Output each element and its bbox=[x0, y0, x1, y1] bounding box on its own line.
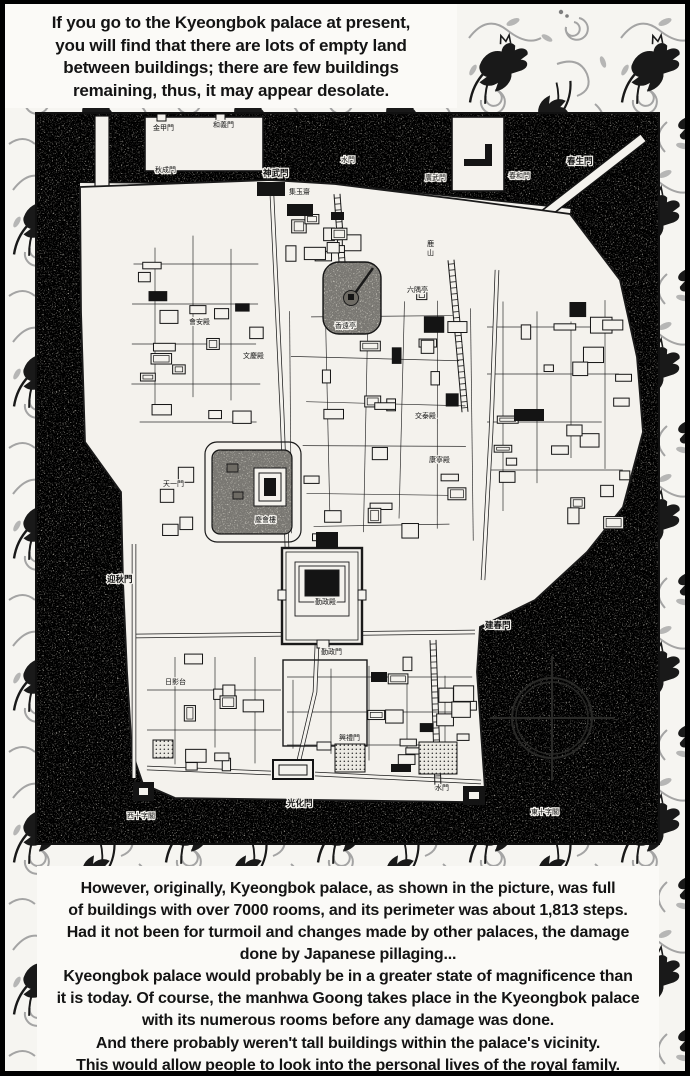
map-label: 集玉齋 bbox=[289, 187, 310, 196]
building bbox=[402, 524, 419, 539]
stream-hatch bbox=[460, 384, 466, 385]
building bbox=[360, 341, 380, 351]
building bbox=[544, 365, 553, 372]
building bbox=[400, 739, 416, 746]
stream-hatch bbox=[456, 341, 462, 342]
building bbox=[243, 700, 263, 712]
building bbox=[286, 246, 296, 261]
gwanghwamun-gate bbox=[273, 760, 313, 779]
building bbox=[448, 322, 467, 333]
map-label: 慶會樓 bbox=[255, 515, 276, 524]
building bbox=[571, 498, 585, 508]
map-label: 勤政門 bbox=[321, 647, 342, 656]
building bbox=[190, 306, 206, 314]
map-label: 日影台 bbox=[165, 677, 186, 686]
building bbox=[398, 755, 415, 765]
building bbox=[616, 374, 632, 381]
building bbox=[160, 310, 178, 323]
stream-hatch bbox=[452, 300, 458, 301]
map-label: 水門 bbox=[435, 783, 449, 792]
map-label: 秋成門 bbox=[155, 165, 176, 174]
building bbox=[421, 340, 434, 353]
building bbox=[580, 434, 599, 447]
dark-hall bbox=[316, 532, 338, 548]
palace-map: 金甲門和義門秋成門神武門水門集玉齋廣武門春和門春生門鹿山會安殿文慶殿六隅亭香遠亭… bbox=[35, 112, 660, 845]
stream-hatch bbox=[461, 402, 467, 403]
map-label: 金甲門 bbox=[153, 123, 174, 132]
map-label: 迎秋門 bbox=[107, 574, 133, 585]
map-label: 東十字閣 bbox=[531, 807, 559, 816]
stream-hatch bbox=[458, 372, 464, 373]
stream-hatch bbox=[459, 378, 465, 379]
building bbox=[209, 411, 222, 419]
building bbox=[151, 354, 172, 365]
bottom-caption: However, originally, Kyeongbok palace, a… bbox=[37, 866, 659, 1071]
building bbox=[614, 398, 630, 406]
stream-hatch bbox=[460, 390, 466, 391]
building bbox=[437, 714, 454, 726]
building bbox=[392, 348, 401, 364]
building bbox=[173, 365, 186, 374]
stream-hatch bbox=[462, 407, 468, 408]
hatched-store bbox=[419, 742, 457, 774]
dark-hall bbox=[331, 212, 344, 220]
building bbox=[215, 753, 229, 761]
stream-hatch bbox=[453, 311, 459, 312]
building bbox=[506, 458, 516, 465]
gyeonghoeru-pond bbox=[205, 442, 301, 542]
building bbox=[304, 247, 325, 259]
building bbox=[372, 447, 387, 459]
map-label: 神武門 bbox=[263, 168, 289, 179]
building bbox=[250, 327, 263, 338]
building bbox=[620, 471, 630, 480]
building bbox=[322, 370, 330, 383]
building bbox=[138, 272, 150, 281]
building bbox=[233, 411, 251, 423]
building bbox=[327, 243, 339, 253]
building bbox=[603, 320, 623, 330]
map-label: 交泰殿 bbox=[415, 411, 436, 420]
building bbox=[521, 325, 530, 339]
stream-hatch bbox=[451, 288, 457, 289]
map-label: 康寧殿 bbox=[429, 455, 450, 464]
building bbox=[325, 511, 341, 523]
building bbox=[215, 309, 229, 319]
west-sipjagak bbox=[133, 782, 154, 801]
map-label: 會安殿 bbox=[189, 317, 210, 326]
building bbox=[403, 657, 412, 670]
building bbox=[304, 476, 319, 483]
top-caption: If you go to the Kyeongbok palace at pre… bbox=[5, 4, 457, 108]
hatched-store bbox=[153, 740, 173, 758]
building bbox=[583, 347, 603, 362]
building bbox=[441, 474, 458, 481]
building bbox=[386, 710, 404, 723]
stream-hatch bbox=[455, 335, 461, 336]
building bbox=[160, 489, 173, 502]
northwest-enclosure bbox=[145, 114, 263, 171]
building bbox=[143, 262, 161, 269]
map-label: 香遠亭 bbox=[335, 321, 356, 330]
building bbox=[567, 425, 582, 436]
building bbox=[375, 403, 396, 410]
building bbox=[388, 674, 408, 684]
map-label: 興禮門 bbox=[339, 733, 360, 742]
sinmumun-gate bbox=[257, 182, 285, 196]
page: If you go to the Kyeongbok palace at pre… bbox=[5, 4, 685, 1071]
building bbox=[163, 524, 178, 535]
building bbox=[570, 303, 586, 317]
map-label: 文慶殿 bbox=[243, 351, 264, 360]
building bbox=[424, 317, 443, 333]
map-label: 西十字閣 bbox=[127, 811, 155, 820]
stream-hatch bbox=[452, 306, 458, 307]
stream-hatch bbox=[448, 264, 454, 265]
dark-hall bbox=[287, 204, 313, 216]
stream-hatch bbox=[457, 360, 463, 361]
building bbox=[568, 508, 579, 524]
dark-hall bbox=[391, 764, 411, 772]
building bbox=[439, 688, 454, 702]
stream-hatch bbox=[456, 348, 462, 349]
building bbox=[446, 394, 458, 406]
building bbox=[457, 734, 469, 740]
stream-hatch bbox=[450, 276, 456, 277]
building bbox=[431, 372, 439, 385]
building bbox=[207, 338, 220, 349]
building bbox=[149, 292, 167, 301]
stream-hatch bbox=[461, 396, 467, 397]
stream-hatch bbox=[454, 317, 460, 318]
stream-hatch bbox=[451, 294, 457, 295]
page-border: If you go to the Kyeongbok palace at pre… bbox=[0, 0, 690, 1076]
east-sipjagak bbox=[463, 786, 485, 805]
map-label: 廣武門 bbox=[425, 173, 446, 182]
building bbox=[185, 654, 203, 664]
building bbox=[186, 763, 197, 771]
building bbox=[152, 405, 171, 415]
dark-hall bbox=[371, 672, 387, 682]
building bbox=[452, 702, 471, 717]
map-label: 建春門 bbox=[484, 620, 511, 631]
map-label: 春和門 bbox=[509, 171, 530, 180]
building bbox=[153, 343, 175, 351]
building bbox=[573, 362, 588, 376]
map-label: 六隅亭 bbox=[407, 285, 428, 294]
dark-hall bbox=[514, 409, 544, 421]
map-label: 春生門 bbox=[566, 156, 593, 167]
building bbox=[601, 485, 614, 496]
northeast-enclosure bbox=[452, 117, 504, 191]
map-label: 勤政殿 bbox=[315, 597, 336, 606]
building bbox=[236, 304, 250, 311]
map-label: 光化門 bbox=[286, 798, 313, 809]
building bbox=[420, 724, 433, 732]
building bbox=[552, 446, 569, 454]
building bbox=[499, 472, 515, 483]
building bbox=[554, 324, 576, 330]
map-label: 水門 bbox=[341, 155, 355, 164]
building bbox=[454, 686, 474, 702]
map-label: 天一門 bbox=[163, 480, 184, 488]
hatched-store bbox=[335, 744, 365, 772]
building bbox=[186, 749, 206, 762]
building bbox=[324, 409, 344, 418]
map-label: 和義門 bbox=[213, 120, 234, 129]
stream-hatch bbox=[457, 354, 463, 355]
stream-hatch bbox=[449, 270, 455, 271]
stream-hatch bbox=[450, 282, 456, 283]
building bbox=[180, 517, 193, 529]
stream-hatch bbox=[458, 366, 464, 367]
